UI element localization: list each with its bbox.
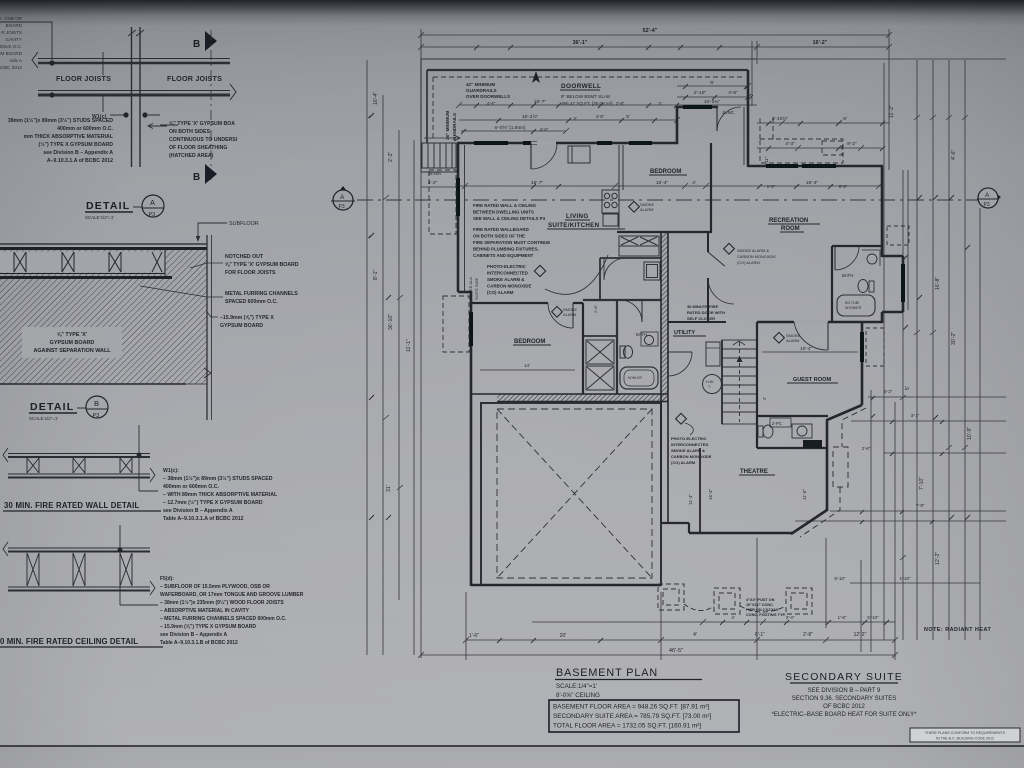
svg-text:4'-6": 4'-6" <box>540 127 549 132</box>
svg-text:36'-1": 36'-1" <box>573 40 588 46</box>
svg-text:8'-1": 8'-1" <box>373 270 379 280</box>
svg-text:P3: P3 <box>984 202 990 208</box>
svg-text:SUITE SIDE: SUITE SIDE <box>474 277 479 300</box>
svg-text:SUITE/KITCHEN: SUITE/KITCHEN <box>548 222 600 229</box>
svg-text:ON BOTH SIDES OF THE: ON BOTH SIDES OF THE <box>473 234 525 239</box>
svg-text:FIRE SEPARATION MUST CONTINUE: FIRE SEPARATION MUST CONTINUE <box>473 240 550 245</box>
svg-text:P3: P3 <box>149 212 156 218</box>
svg-text:6'-0⅝" [1.84m]: 6'-0⅝" [1.84m] <box>495 125 526 131</box>
svg-text:BOARD: BOARD <box>6 23 23 28</box>
svg-text:400mm or 600mm O.C.: 400mm or 600mm O.C. <box>57 126 113 132</box>
svg-text:11'-6": 11'-6" <box>802 489 807 500</box>
svg-text:OF BCBC 2012: OF BCBC 2012 <box>823 704 865 710</box>
svg-text:UTILITY: UTILITY <box>674 330 695 336</box>
svg-text:ndix A: ndix A <box>9 58 22 63</box>
svg-text:3'-1": 3'-1" <box>911 413 920 418</box>
svg-text:NOTCHED OUT: NOTCHED OUT <box>225 254 264 260</box>
svg-text:H.W.: H.W. <box>706 380 714 384</box>
svg-text:(CO) ALARM: (CO) ALARM <box>671 460 696 465</box>
svg-text:15'-2⅞": 15'-2⅞" <box>522 114 539 120</box>
svg-text:2'-8": 2'-8" <box>803 632 813 638</box>
svg-text:30 MINUTE FIRE: 30 MINUTE FIRE <box>687 304 718 309</box>
svg-text:SCALE:1/2"=1': SCALE:1/2"=1' <box>85 215 114 220</box>
svg-text:FIRE RATED WALLBOARD: FIRE RATED WALLBOARD <box>473 227 529 232</box>
svg-text:DETAIL: DETAIL <box>30 401 74 413</box>
svg-text:16'-4": 16'-4" <box>373 92 379 105</box>
svg-text:400mm or 600mm O.C.: 400mm or 600mm O.C. <box>163 484 219 490</box>
svg-text:6'-1": 6'-1" <box>755 632 765 638</box>
svg-text:LIVING: LIVING <box>566 213 588 220</box>
svg-text:2'-8": 2'-8" <box>593 304 598 313</box>
svg-text:16'-2": 16'-2" <box>813 40 828 46</box>
svg-text:IN THE B.C. BUILDING CODE 2012: IN THE B.C. BUILDING CODE 2012 <box>936 737 994 741</box>
svg-text:1'-6": 1'-6" <box>838 615 847 620</box>
svg-text:CARBON MONOXIDE: CARBON MONOXIDE <box>737 254 776 259</box>
svg-text:SPACED 600mm O.C.: SPACED 600mm O.C. <box>225 299 278 305</box>
svg-text:NOTE: RADIANT HEAT: NOTE: RADIANT HEAT <box>924 627 992 633</box>
svg-text:4'-6": 4'-6" <box>487 101 496 106</box>
svg-text:– 38mm (1½")x 235mm (9¼") WOOD: – 38mm (1½")x 235mm (9¼") WOOD FLOOR JOI… <box>160 599 284 606</box>
svg-text:4': 4' <box>731 615 734 620</box>
svg-text:INTERCONNECTED: INTERCONNECTED <box>487 271 528 276</box>
svg-text:– 15.9mm (⅝") TYPE X GYPSUM BO: – 15.9mm (⅝") TYPE X GYPSUM BOARD <box>160 624 256 630</box>
svg-text:BEDROOM: BEDROOM <box>650 169 681 175</box>
svg-text:SEE WALL & CEILING DETAILS P3: SEE WALL & CEILING DETAILS P3 <box>473 216 546 221</box>
svg-text:10'-4": 10'-4" <box>800 346 812 351</box>
svg-text:UM BOARD: UM BOARD <box>0 51 23 56</box>
svg-text:38mm (1½")x 89mm (3½") STUDS S: 38mm (1½")x 89mm (3½") STUDS SPACED <box>8 117 113 124</box>
svg-text:3'-10½": 3'-10½" <box>772 115 789 122</box>
svg-text:Table A–9.10.3.1.A of BCBC 201: Table A–9.10.3.1.A of BCBC 2012 <box>163 516 244 522</box>
svg-text:CONTINUOUS TO UNDERSI: CONTINUOUS TO UNDERSI <box>169 137 238 143</box>
svg-text:BASEMENT FLOOR AREA = 948.26: BASEMENT FLOOR AREA = 948.26 SQ.FT. [87.… <box>553 704 710 711</box>
svg-text:see Division B – Appendix A: see Division B – Appendix A <box>163 508 233 514</box>
svg-text:15'-4": 15'-4" <box>656 180 669 186</box>
svg-text:P3: P3 <box>339 204 345 210</box>
svg-text:GUEST ROOM: GUEST ROOM <box>793 377 832 383</box>
svg-text:42" MINIMUM: 42" MINIMUM <box>466 82 495 87</box>
svg-text:CAVITY: CAVITY <box>6 37 22 42</box>
svg-text:9': 9' <box>710 80 714 86</box>
svg-text:A: A <box>340 194 345 201</box>
svg-text:⅝" TYPE 'X' GYPSUM BOARD: ⅝" TYPE 'X' GYPSUM BOARD <box>225 262 299 268</box>
svg-text:4'-3": 4'-3" <box>785 141 795 147</box>
svg-text:5'-10": 5'-10" <box>867 615 879 620</box>
svg-text:30'-2": 30'-2" <box>951 332 957 345</box>
svg-text:(½") TYPE X GYPSUM BOARD: (½") TYPE X GYPSUM BOARD <box>38 141 113 148</box>
svg-text:B: B <box>193 39 200 50</box>
svg-text:RATED DOOR WITH: RATED DOOR WITH <box>687 310 725 315</box>
svg-text:4'-6": 4'-6" <box>596 114 605 119</box>
svg-text:1'-10": 1'-10" <box>900 576 911 581</box>
svg-text:ON BOTH SIDES: ON BOTH SIDES <box>169 129 210 135</box>
svg-text:P3: P3 <box>93 413 100 419</box>
svg-text:– 12.7mm (½") TYPE X GYPSUM BO: – 12.7mm (½") TYPE X GYPSUM BOARD <box>163 499 263 506</box>
svg-text:FLOOR JOISTS: FLOOR JOISTS <box>56 74 111 83</box>
svg-text:2'-10": 2'-10" <box>694 90 707 96</box>
svg-text:0 MIN. FIRE RATED CEILING DETA: 0 MIN. FIRE RATED CEILING DETAIL <box>0 637 138 646</box>
svg-text:4"X4" POST ON: 4"X4" POST ON <box>746 598 775 602</box>
svg-text:8'-0⅝" CEILING: 8'-0⅝" CEILING <box>556 692 600 699</box>
svg-text:8': 8' <box>843 116 847 122</box>
svg-text:11'-1": 11'-1" <box>406 339 412 352</box>
svg-text:GUARDRAILS: GUARDRAILS <box>466 88 497 93</box>
svg-text:8'-2": 8'-2" <box>847 141 857 147</box>
svg-text:(HATCHED AREA): (HATCHED AREA) <box>169 153 214 159</box>
svg-text:– ABSORPTIVE MATERIAL IN CAVIT: – ABSORPTIVE MATERIAL IN CAVITY <box>160 608 250 614</box>
svg-text:SEE DIVISION B – PART 9: SEE DIVISION B – PART 9 <box>808 688 881 694</box>
svg-text:48 MIN: 48 MIN <box>428 171 441 176</box>
svg-text:36" MINIMUM: 36" MINIMUM <box>445 111 450 140</box>
svg-text:5': 5' <box>905 386 911 390</box>
svg-text:8'-2": 8'-2" <box>839 184 848 189</box>
svg-text:2-PC: 2-PC <box>772 421 782 426</box>
svg-text:SCALE:1/2"=1': SCALE:1/2"=1' <box>29 416 58 421</box>
svg-text:B: B <box>94 399 99 408</box>
svg-text:mm THICK ABSORPTIVE MATERIAL: mm THICK ABSORPTIVE MATERIAL <box>24 134 114 140</box>
svg-text:ALARM: ALARM <box>640 207 653 212</box>
svg-text:R JOISTS: R JOISTS <box>1 30 22 35</box>
svg-text:CABINETS AND EQUIPMENT: CABINETS AND EQUIPMENT <box>473 253 534 258</box>
svg-text:30 MIN. FIRE RATED WALL DETAIL: 30 MIN. FIRE RATED WALL DETAIL <box>4 501 140 510</box>
svg-text:SHOWER: SHOWER <box>845 306 862 310</box>
svg-text:Table A–9.10.3.1.B of BCBC 201: Table A–9.10.3.1.B of BCBC 2012 <box>160 640 238 646</box>
svg-text:RECREATION: RECREATION <box>769 218 808 224</box>
svg-text:2'-8": 2'-8" <box>616 101 625 106</box>
svg-text:⅝" TYPE 'X': ⅝" TYPE 'X' <box>57 332 87 338</box>
svg-text:– 38mm (1½")x 89mm (3½") STUDS: – 38mm (1½")x 89mm (3½") STUDS SPACED <box>163 475 273 482</box>
svg-text:WAFERBOARD, OR 17mm TONGUE AND: WAFERBOARD, OR 17mm TONGUE AND GROOVE LU… <box>160 592 304 598</box>
svg-text:1'-6": 1'-6" <box>469 633 479 639</box>
svg-text:9" BELOW BSMT SLAB: 9" BELOW BSMT SLAB <box>561 94 610 99</box>
svg-text:FLOOR JOISTS: FLOOR JOISTS <box>167 74 222 83</box>
svg-text:DETAIL: DETAIL <box>86 200 130 212</box>
svg-text:600mm O.C.: 600mm O.C. <box>0 44 22 49</box>
svg-text:14': 14' <box>524 363 530 368</box>
svg-text:12'-2": 12'-2" <box>854 632 867 638</box>
svg-text:SELF CLOSER: SELF CLOSER <box>687 316 715 321</box>
svg-text:SMOKE ALARM &: SMOKE ALARM & <box>671 448 705 453</box>
svg-text:FIRE RATED WALL & CEILING: FIRE RATED WALL & CEILING <box>473 203 537 208</box>
svg-text:5'-2": 5'-2" <box>884 389 893 394</box>
svg-text:PHOTO-ELECTRIC: PHOTO-ELECTRIC <box>487 264 527 269</box>
svg-text:16'-4": 16'-4" <box>708 488 713 500</box>
svg-text:KOHLER: KOHLER <box>628 376 642 380</box>
svg-text:ALARM: ALARM <box>563 312 576 317</box>
svg-text:DOORWELL: DOORWELL <box>561 83 601 90</box>
svg-text:–15.9mm (⅝") TYPE X: –15.9mm (⅝") TYPE X <box>220 315 274 321</box>
svg-text:A–9.10.3.1.A of BCBC 2012: A–9.10.3.1.A of BCBC 2012 <box>47 158 113 164</box>
svg-text:1'-6": 1'-6" <box>767 184 776 189</box>
svg-text:18'-7": 18'-7" <box>534 99 547 105</box>
svg-text:GYPSUM BOARD: GYPSUM BOARD <box>50 340 95 346</box>
svg-text:3': 3' <box>658 101 661 106</box>
svg-text:3': 3' <box>573 116 576 121</box>
svg-text:OVER DOORWELLS: OVER DOORWELLS <box>466 94 510 99</box>
svg-text:16"X16" CONC.: 16"X16" CONC. <box>746 603 774 607</box>
svg-text:METAL FURRING CHANNELS: METAL FURRING CHANNELS <box>225 291 298 297</box>
svg-text:CARBON MONOXIDE: CARBON MONOXIDE <box>487 284 531 289</box>
svg-text:CARBON MONOXIDE: CARBON MONOXIDE <box>671 454 712 459</box>
svg-text:2'-2": 2'-2" <box>388 152 394 162</box>
svg-text:SECONDARY SUITE AREA = 785.7: SECONDARY SUITE AREA = 785.79 SQ.FT. [73… <box>553 713 712 720</box>
svg-text:A: A <box>985 192 990 199</box>
svg-text:19'-3": 19'-3" <box>806 180 819 186</box>
svg-text:11'-4": 11'-4" <box>688 494 693 505</box>
svg-text:SMOKE ALA: SMOKE ALA <box>468 277 473 300</box>
svg-text:A: A <box>150 198 155 207</box>
svg-text:4': 4' <box>692 180 696 186</box>
svg-text:SMOKE ALARM &: SMOKE ALARM & <box>487 277 525 282</box>
svg-text:3'-4": 3'-4" <box>786 615 795 620</box>
svg-text:F5(d):: F5(d): <box>160 576 174 582</box>
svg-text:ROOM: ROOM <box>781 226 800 232</box>
svg-text:FOR FLOOR JOISTS: FOR FLOOR JOISTS <box>225 270 276 276</box>
svg-text:– WITH 89mm THICK ABSORPTIVE M: – WITH 89mm THICK ABSORPTIVE MATERIAL <box>163 492 278 498</box>
svg-text:W1(c):: W1(c): <box>163 468 179 474</box>
svg-text:SUBFLOOR: SUBFLOOR <box>229 221 259 227</box>
svg-text:T.: T. <box>708 385 711 389</box>
svg-text:31': 31' <box>386 485 392 492</box>
svg-text:10'-9": 10'-9" <box>967 427 973 440</box>
svg-text:THEATRE: THEATRE <box>740 469 768 475</box>
svg-text:⅝" TYPE 'X' GYPSUM BOA: ⅝" TYPE 'X' GYPSUM BOA <box>169 121 235 127</box>
svg-text:*ELECTRIC–BASE BOARD HEAT FOR: *ELECTRIC–BASE BOARD HEAT FOR SUITE ONLY… <box>771 712 917 718</box>
svg-text:36'-10": 36'-10" <box>388 314 394 330</box>
svg-text:see Division B – Appendix A: see Division B – Appendix A <box>43 150 113 156</box>
svg-text:2'-6": 2'-6" <box>862 446 871 451</box>
svg-text:SMOKE ALARM &: SMOKE ALARM & <box>737 248 769 253</box>
svg-text:CONC. FOOTING TYP.: CONC. FOOTING TYP. <box>746 613 786 617</box>
svg-text:BEDROOM: BEDROOM <box>514 339 545 345</box>
svg-text:GYPSUM BOARD: GYPSUM BOARD <box>220 323 263 329</box>
svg-text:BCBC 2012: BCBC 2012 <box>0 65 22 70</box>
svg-text:52'-4": 52'-4" <box>643 28 658 34</box>
svg-text:4': 4' <box>762 397 767 400</box>
svg-text:SECONDARY SUITE: SECONDARY SUITE <box>785 671 903 683</box>
svg-text:SECTION 9.36. SECONDARY SUITES: SECTION 9.36. SECONDARY SUITES <box>792 696 896 702</box>
svg-text:BETWEEN DWELLING UNITS: BETWEEN DWELLING UNITS <box>473 210 534 215</box>
svg-text:(CO) ALARM: (CO) ALARM <box>487 290 514 295</box>
svg-text:18'-7": 18'-7" <box>531 180 544 186</box>
svg-text:20': 20' <box>560 633 567 639</box>
svg-text:BEHIND PLUMBING FIXTURES,: BEHIND PLUMBING FIXTURES, <box>473 247 539 252</box>
svg-text:OF FLOOR SHEATHING: OF FLOOR SHEATHING <box>169 145 227 151</box>
svg-text:BATH: BATH <box>636 332 647 337</box>
svg-text:5/3 TUB/: 5/3 TUB/ <box>845 301 859 305</box>
svg-text:16'-8": 16'-8" <box>935 277 941 290</box>
svg-text:JUNC: JUNC <box>722 110 735 115</box>
svg-text:4'-6": 4'-6" <box>951 150 957 160</box>
svg-text:11'-2": 11'-2" <box>889 105 895 118</box>
svg-text:THESE PLANS CONFORM TO REQUIRE: THESE PLANS CONFORM TO REQUIREMENTS <box>925 731 1006 735</box>
svg-text:5': 5' <box>626 114 630 120</box>
svg-text:AGAINST SEPARATION WALL: AGAINST SEPARATION WALL <box>33 348 111 354</box>
svg-text:SCALE:1/4"=1': SCALE:1/4"=1' <box>556 683 597 690</box>
svg-text:7'-8": 7'-8" <box>916 503 925 508</box>
svg-text:12'-2": 12'-2" <box>935 552 941 565</box>
svg-text:BASEMENT PLAN: BASEMENT PLAN <box>556 667 658 679</box>
svg-text:46'-5": 46'-5" <box>669 648 683 654</box>
svg-text:BATH: BATH <box>842 273 853 278</box>
svg-text:PHOTO-ELECTRIC: PHOTO-ELECTRIC <box>671 436 707 441</box>
svg-text:4'-6": 4'-6" <box>728 90 738 96</box>
svg-text:WOOD, OSB OR: WOOD, OSB OR <box>0 16 23 21</box>
svg-text:B: B <box>193 172 200 183</box>
svg-text:5'-10": 5'-10" <box>835 576 846 581</box>
svg-text:4': 4' <box>693 632 697 638</box>
svg-text:PIER ON 2'X2'X10": PIER ON 2'X2'X10" <box>746 608 780 612</box>
svg-text:TOTAL FLOOR AREA = 1732.05 S: TOTAL FLOOR AREA = 1732.05 SQ.FT. [160.9… <box>553 723 701 730</box>
svg-text:– SUBFLOOR OF 15.5mm PLYWOOD,: – SUBFLOOR OF 15.5mm PLYWOOD, OSB OR <box>160 584 270 590</box>
svg-text:– METAL FURRING CHANNELS SPACE: – METAL FURRING CHANNELS SPACED 600mm O.… <box>160 616 287 622</box>
svg-text:ALARM: ALARM <box>786 338 799 343</box>
svg-text:INTERCONNECTED: INTERCONNECTED <box>671 442 708 447</box>
svg-text:7'-10": 7'-10" <box>919 477 925 490</box>
svg-text:(CO) ALARM: (CO) ALARM <box>737 260 760 265</box>
svg-text:see Division B – Appendix A: see Division B – Appendix A <box>160 632 228 638</box>
